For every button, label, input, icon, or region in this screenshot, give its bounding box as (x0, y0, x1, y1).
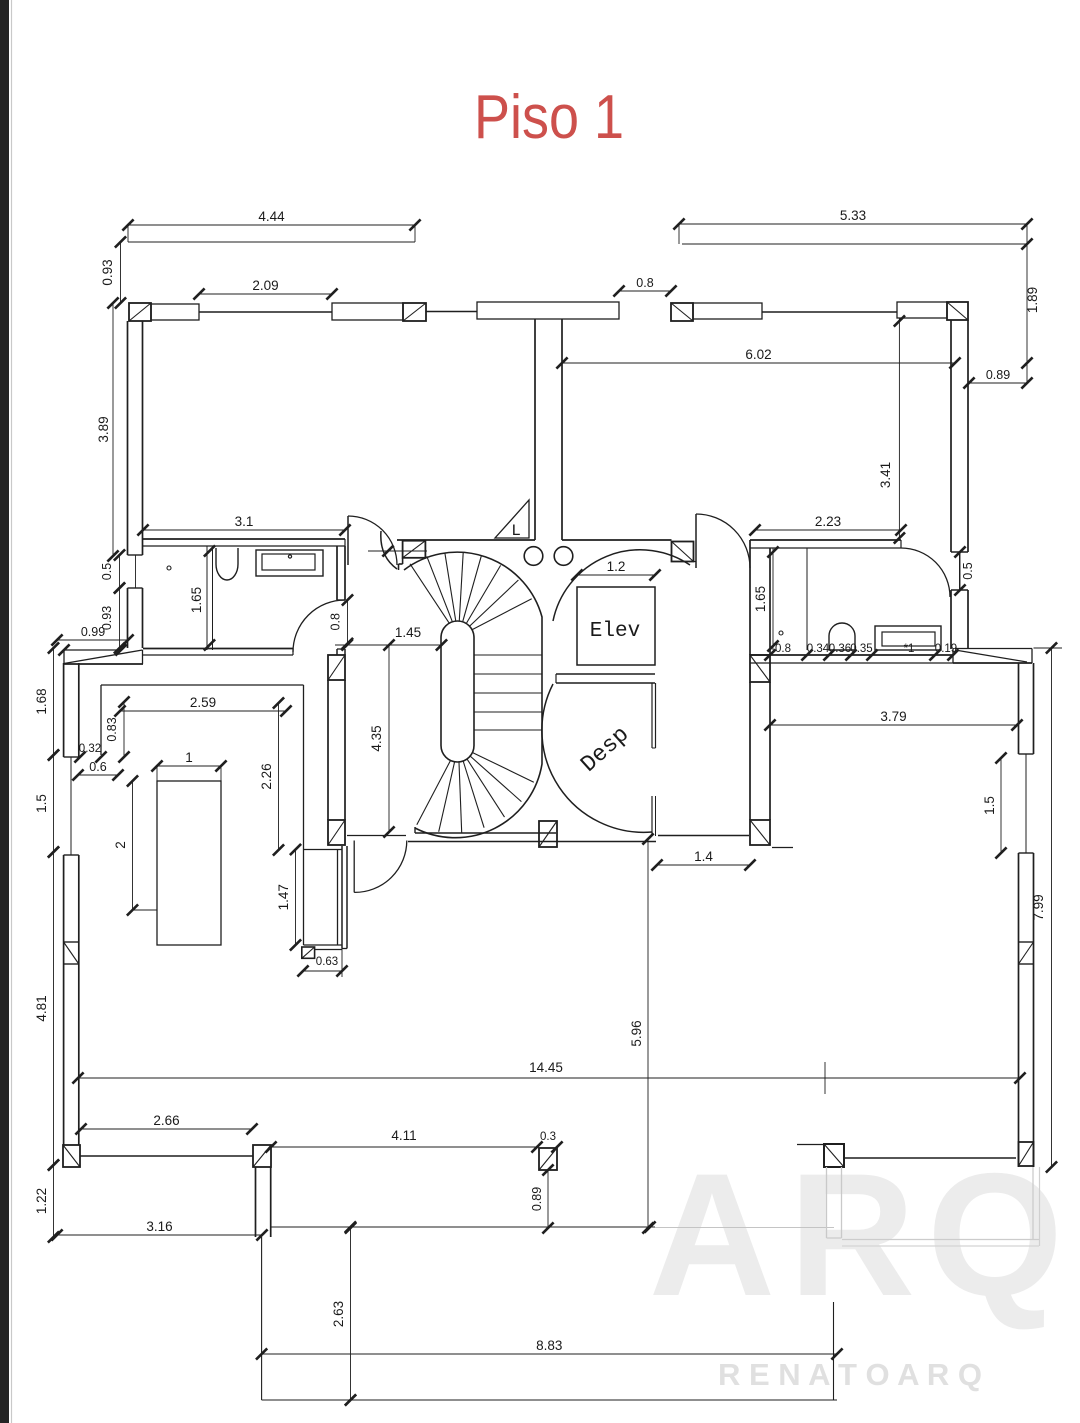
svg-text:2: 2 (113, 841, 128, 849)
svg-text:Elev: Elev (590, 620, 640, 643)
svg-text:0.3: 0.3 (540, 1131, 556, 1143)
svg-text:1.5: 1.5 (34, 794, 49, 813)
svg-text:3.89: 3.89 (96, 416, 111, 442)
svg-text:0.5: 0.5 (961, 562, 975, 579)
svg-text:6.02: 6.02 (745, 347, 771, 362)
svg-text:0.63: 0.63 (316, 956, 338, 968)
svg-text:L: L (511, 522, 521, 540)
svg-text:R: R (789, 1138, 915, 1333)
svg-text:2.66: 2.66 (153, 1113, 179, 1128)
svg-text:4.11: 4.11 (391, 1128, 416, 1143)
svg-text:1.4: 1.4 (694, 849, 713, 864)
svg-text:1.89: 1.89 (1025, 287, 1040, 313)
svg-text:R E N A T O A R Q: R E N A T O A R Q (718, 1357, 982, 1392)
svg-text:0.83: 0.83 (105, 717, 119, 741)
svg-text:0.5: 0.5 (100, 563, 114, 580)
svg-text:3.16: 3.16 (146, 1219, 172, 1234)
svg-text:0.8: 0.8 (636, 276, 653, 290)
svg-text:0.89: 0.89 (986, 368, 1010, 382)
svg-text:14.45: 14.45 (529, 1060, 563, 1075)
svg-text:*1: *1 (904, 643, 915, 655)
svg-text:1.68: 1.68 (34, 688, 49, 714)
svg-text:1.5: 1.5 (982, 796, 997, 815)
svg-text:0.8: 0.8 (329, 613, 343, 630)
svg-text:3.41: 3.41 (878, 462, 893, 488)
svg-text:0.89: 0.89 (530, 1187, 544, 1211)
svg-text:0.93: 0.93 (100, 259, 115, 285)
svg-text:4.81: 4.81 (34, 995, 49, 1021)
svg-text:2.26: 2.26 (259, 763, 274, 789)
svg-text:3.79: 3.79 (880, 709, 906, 724)
svg-text:1.65: 1.65 (753, 586, 768, 612)
svg-text:1.65: 1.65 (189, 587, 204, 613)
svg-text:5.33: 5.33 (840, 208, 866, 223)
svg-text:0.6: 0.6 (89, 760, 106, 774)
svg-text:1.47: 1.47 (276, 884, 291, 910)
svg-text:4.44: 4.44 (258, 209, 285, 224)
svg-text:Piso 1: Piso 1 (474, 83, 624, 152)
svg-text:7.99: 7.99 (1031, 894, 1046, 920)
svg-text:2.23: 2.23 (815, 514, 841, 529)
svg-text:5.96: 5.96 (629, 1020, 644, 1046)
svg-text:0.99: 0.99 (81, 625, 105, 639)
svg-text:3.1: 3.1 (235, 514, 254, 529)
svg-text:1.22: 1.22 (34, 1188, 49, 1214)
svg-text:1: 1 (185, 750, 193, 765)
svg-text:1.45: 1.45 (395, 625, 421, 640)
svg-text:4.35: 4.35 (369, 725, 384, 751)
svg-text:Q: Q (927, 1138, 1063, 1333)
svg-text:2.09: 2.09 (252, 278, 278, 293)
svg-text:8.83: 8.83 (536, 1338, 562, 1353)
svg-text:2.63: 2.63 (331, 1301, 346, 1327)
svg-text:A: A (649, 1138, 775, 1333)
svg-text:0.8: 0.8 (775, 643, 791, 655)
svg-text:1.2: 1.2 (607, 559, 626, 574)
svg-text:2.59: 2.59 (190, 695, 216, 710)
